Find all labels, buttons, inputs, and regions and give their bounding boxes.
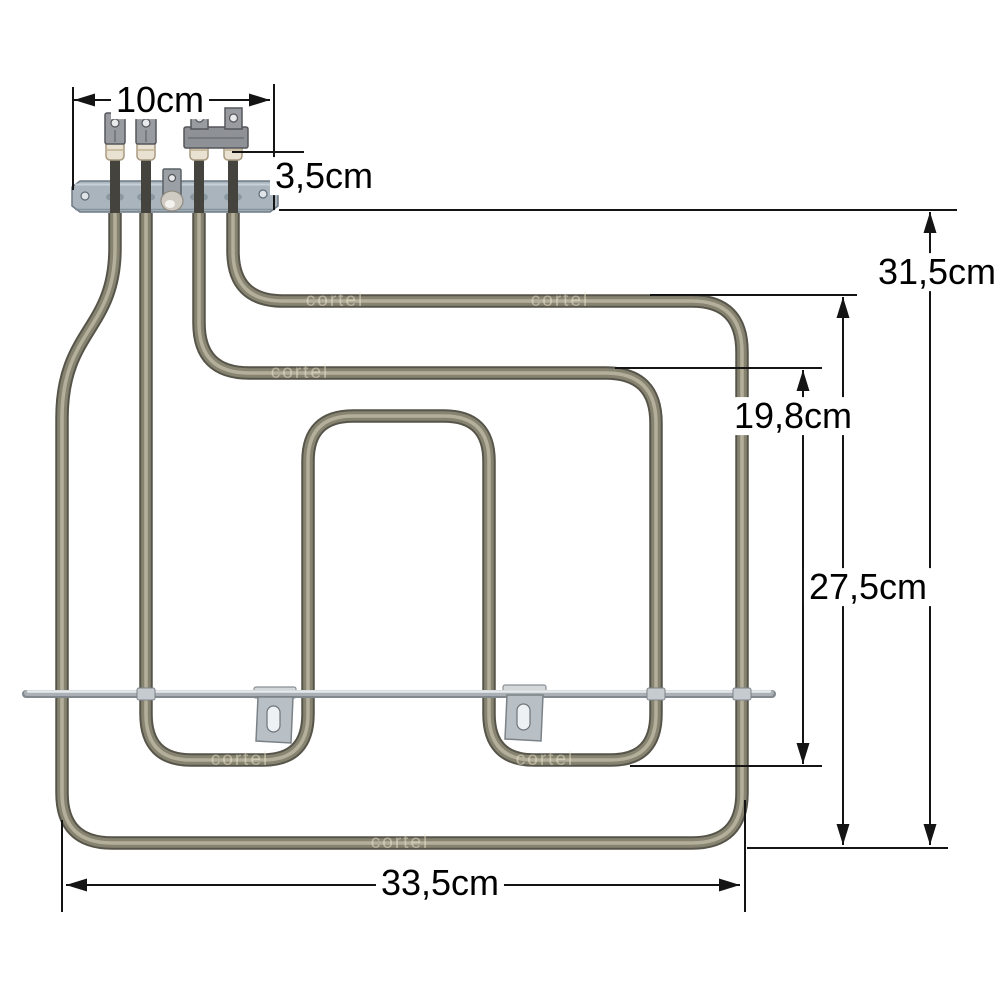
- mounting-bracket-right: [505, 695, 543, 741]
- product-diagram: cortel cortel cortel cortel cortel corte…: [0, 0, 1000, 1000]
- dimension-label-element-height: 27,5cm: [804, 568, 932, 606]
- plate-hole-right: [259, 190, 267, 198]
- dimension-label-terminal-offset: 3,5cm: [270, 157, 378, 195]
- plate-hole-left: [81, 192, 89, 200]
- support-rod: [26, 688, 772, 700]
- dimension-label-bottom-width: 33,5cm: [376, 864, 504, 902]
- heating-element-illustration: [0, 0, 1000, 1000]
- rod-clamp: [647, 688, 665, 700]
- dimension-label-total-height: 31,5cm: [873, 253, 1000, 291]
- mounting-bracket-left: [256, 697, 293, 743]
- dimension-label-inner-loop-height: 19,8cm: [729, 397, 857, 435]
- dimension-label-top-width: 10cm: [111, 81, 209, 119]
- rod-clamp: [137, 688, 155, 700]
- rod-clamp: [733, 688, 751, 700]
- earth-tab: [161, 169, 183, 211]
